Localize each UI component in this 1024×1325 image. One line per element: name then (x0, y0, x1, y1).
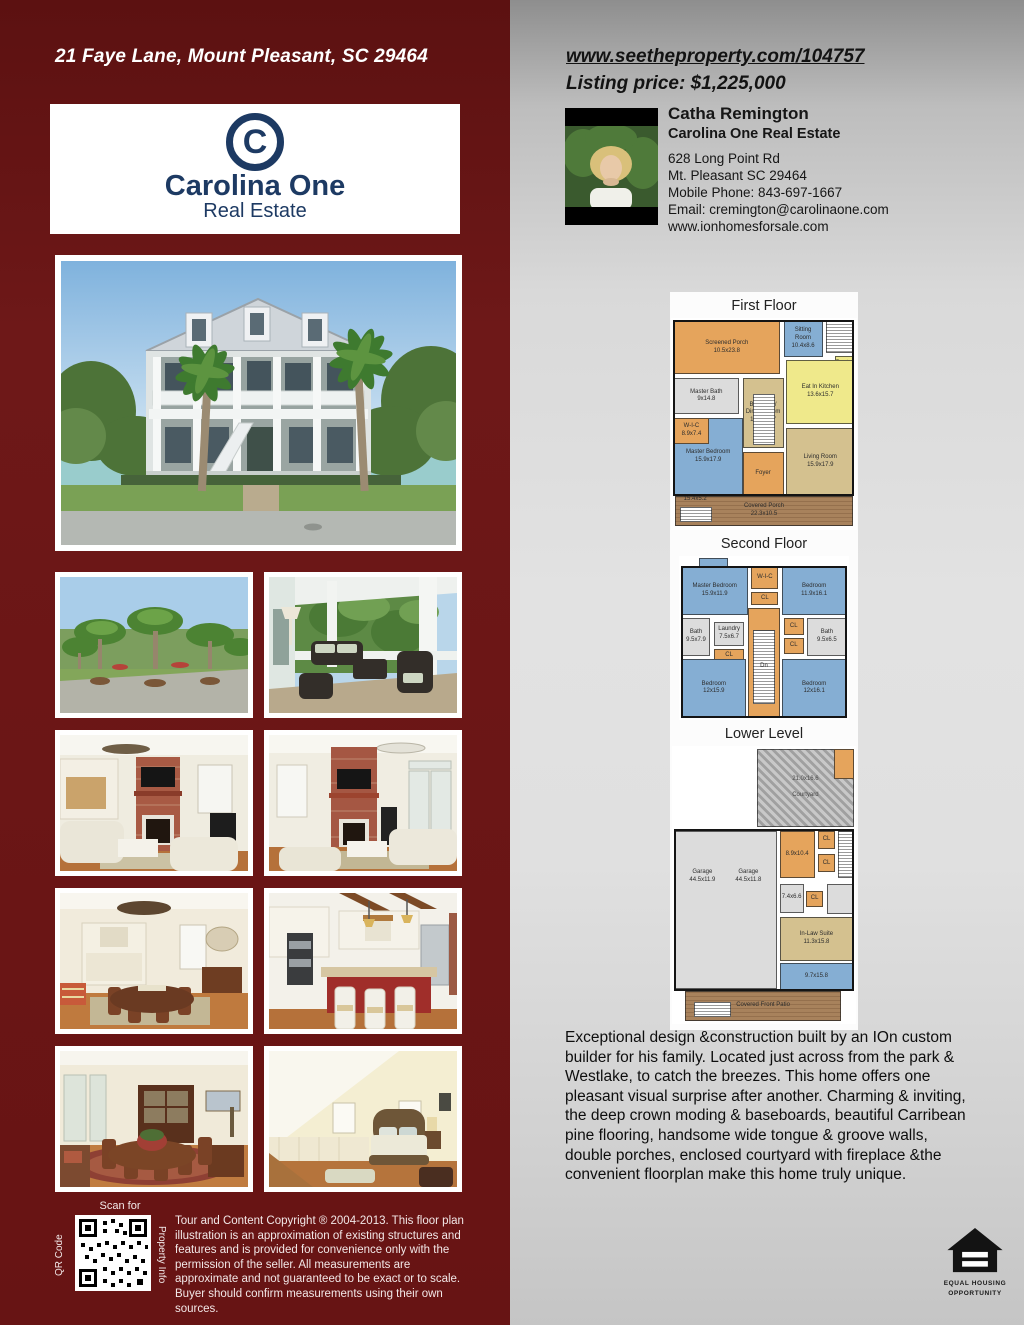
agent-photo (565, 108, 658, 225)
first-floor-plan: Covered Porch 22.3x10.515.4x5.2Screened … (671, 318, 857, 530)
floorplan-room: Bedroom 11.9x16.1 (782, 567, 847, 615)
floorplan-title-first: First Floor (670, 292, 858, 318)
property-description: Exceptional design &construction built b… (565, 1028, 969, 1185)
floorplan-room: Foyer (743, 452, 784, 497)
agent-company: Carolina One Real Estate (668, 126, 1008, 142)
floorplan-room: CL (784, 638, 804, 654)
floorplan-room (694, 1002, 731, 1017)
photo-dining-room (55, 888, 253, 1034)
floorplan-room: Master Bath 9x14.8 (674, 378, 739, 414)
agent-website[interactable]: www.ionhomesforsale.com (668, 218, 1008, 235)
floorplan-room: 9.7x15.8 (780, 963, 854, 991)
floorplan-room (753, 394, 775, 445)
floorplan-room: Bath 9.5x6.5 (807, 618, 846, 656)
floorplan-room: Bedroom 12x16.1 (782, 659, 847, 717)
photo-bedroom (264, 1046, 462, 1192)
photo-family-room-fireplace (264, 730, 462, 876)
carolina-one-monogram-icon: C (226, 113, 284, 171)
photo-living-room-fireplace (55, 730, 253, 876)
right-panel: www.seetheproperty.com/104757 Listing pr… (510, 0, 1024, 1325)
floorplan-room (838, 831, 854, 878)
logo-sub-text: Real Estate (50, 201, 460, 222)
floorplan-room: Dn (753, 630, 775, 704)
qr-label-left: QR Code (54, 1218, 65, 1292)
agent-phone: Mobile Phone: 843-697-1667 (668, 184, 1008, 201)
floorplan-room: Garage 44.5x11.9 (679, 852, 725, 902)
listing-price: Listing price: $1,225,000 (566, 73, 786, 95)
floorplan-room (826, 321, 854, 353)
floorplan-room: Bedroom 12x15.9 (682, 659, 747, 717)
agent-email[interactable]: Email: cremington@carolinaone.com (668, 201, 1008, 218)
floorplan-room: Sitting Room 10.4x8.6 (784, 321, 823, 357)
floorplan-title-second: Second Floor (670, 530, 858, 556)
floorplan-room: Eat In Kitchen 13.6x15.7 (786, 360, 854, 424)
floorplan-room: Screened Porch 10.5x23.8 (674, 321, 780, 374)
floorplan-room: Bath 9.5x7.9 (682, 618, 711, 656)
floorplan-room: CL (806, 891, 823, 908)
floorplan-room: W-I-C 8.9x7.4 (674, 418, 709, 445)
photo-porch (264, 572, 462, 718)
photo-kitchen (264, 888, 462, 1034)
logo-brand-text: Carolina One (50, 172, 460, 201)
agent-address2: Mt. Pleasant SC 29464 (668, 167, 1008, 184)
floorplan-room: CL (751, 592, 778, 605)
qr-code-icon (75, 1215, 151, 1291)
qr-label-right: Property Info (156, 1218, 167, 1292)
photo-park-view (55, 572, 253, 718)
agent-info: Catha Remington Carolina One Real Estate… (668, 104, 1008, 235)
floorplan-room: Garage 44.5x11.8 (725, 852, 771, 902)
floorplan-room: CL (818, 831, 835, 849)
floorplan-room (834, 749, 854, 780)
photo-house-exterior (55, 255, 462, 551)
floorplan-room: CL (784, 618, 804, 634)
floorplan-room: CL (818, 854, 835, 872)
floorplan-room: In-Law Suite 11.3x15.8 (780, 917, 854, 961)
qr-label-top: Scan for (70, 1200, 170, 1212)
floorplan-room (827, 884, 854, 915)
floorplan-strip: First Floor Covered Porch 22.3x10.515.4x… (670, 292, 858, 1030)
brokerage-logo: C Carolina One Real Estate (50, 104, 460, 234)
agent-address1: 628 Long Point Rd (668, 150, 1008, 167)
floorplan-room: 7.4x6.6 (780, 884, 804, 913)
floorplan-title-lower: Lower Level (670, 720, 858, 746)
second-floor-plan: Master Bedroom 15.9x11.9W-I-CCLBedroom 1… (679, 556, 849, 720)
property-website-link[interactable]: www.seetheproperty.com/104757 (566, 46, 865, 68)
floorplan-room (680, 507, 712, 522)
floorplan-room: W-I-C (751, 567, 778, 588)
photo-formal-dining (55, 1046, 253, 1192)
property-address: 21 Faye Lane, Mount Pleasant, SC 29464 (55, 46, 428, 68)
flyer-page: 21 Faye Lane, Mount Pleasant, SC 29464 C… (0, 0, 1024, 1325)
floorplan-room: Master Bedroom 15.9x11.9 (682, 567, 748, 615)
lower-level-plan: 21.0x16.6 CourtyardCovered Front PatioGa… (672, 746, 856, 1024)
eho-line2: OPPORTUNITY (925, 1289, 1024, 1299)
photo-grid (55, 572, 462, 1192)
floorplan-room: Laundry 7.5x6.7 (714, 622, 745, 647)
equal-housing-block: EQUAL HOUSING OPPORTUNITY (925, 1228, 1024, 1299)
agent-name: Catha Remington (668, 104, 1008, 124)
floorplan-room: 8.9x10.4 (780, 831, 815, 878)
eho-line1: EQUAL HOUSING (925, 1279, 1024, 1289)
copyright-text: Tour and Content Copyright ® 2004-2013. … (175, 1214, 465, 1316)
qr-block: Scan for QR Code Property Info (52, 1200, 182, 1316)
house-exterior-illustration (61, 261, 456, 545)
equal-housing-icon (947, 1228, 1003, 1274)
floorplan-room: Living Room 15.9x17.9 (786, 428, 854, 496)
left-panel: 21 Faye Lane, Mount Pleasant, SC 29464 C… (0, 0, 510, 1325)
